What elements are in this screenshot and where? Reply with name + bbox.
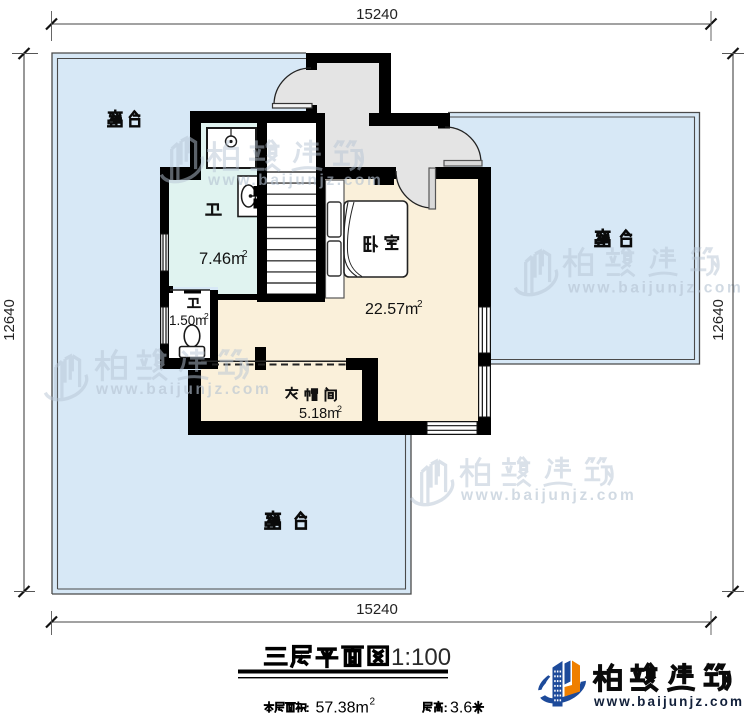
svg-text:www.baijunjz.com: www.baijunjz.com [593, 694, 744, 709]
svg-text:2: 2 [417, 299, 423, 310]
svg-text:2: 2 [242, 249, 248, 260]
svg-text:www.baijunjz.com: www.baijunjz.com [567, 280, 743, 297]
svg-text:www.baijunjz.com: www.baijunjz.com [460, 487, 636, 504]
svg-text:1.50m: 1.50m [169, 313, 207, 328]
svg-text:3.6: 3.6 [450, 700, 472, 717]
svg-text:12640: 12640 [1, 299, 18, 341]
svg-text:www.baijunjz.com: www.baijunjz.com [207, 172, 383, 189]
svg-text:12640: 12640 [710, 299, 727, 341]
svg-text:15240: 15240 [356, 601, 398, 618]
svg-text:2: 2 [370, 697, 376, 708]
svg-text::: : [444, 700, 448, 715]
svg-text::: : [306, 700, 310, 715]
svg-text:57.38m: 57.38m [316, 700, 369, 717]
svg-text:www.baijunjz.com: www.baijunjz.com [95, 381, 271, 398]
svg-text:2: 2 [204, 311, 209, 321]
svg-text:2: 2 [337, 404, 342, 414]
svg-text:22.57m: 22.57m [365, 301, 418, 318]
svg-text:5.18m: 5.18m [299, 406, 339, 422]
svg-text:15240: 15240 [356, 6, 398, 23]
svg-text:1:100: 1:100 [391, 644, 451, 671]
svg-text:7.46m: 7.46m [199, 250, 245, 268]
